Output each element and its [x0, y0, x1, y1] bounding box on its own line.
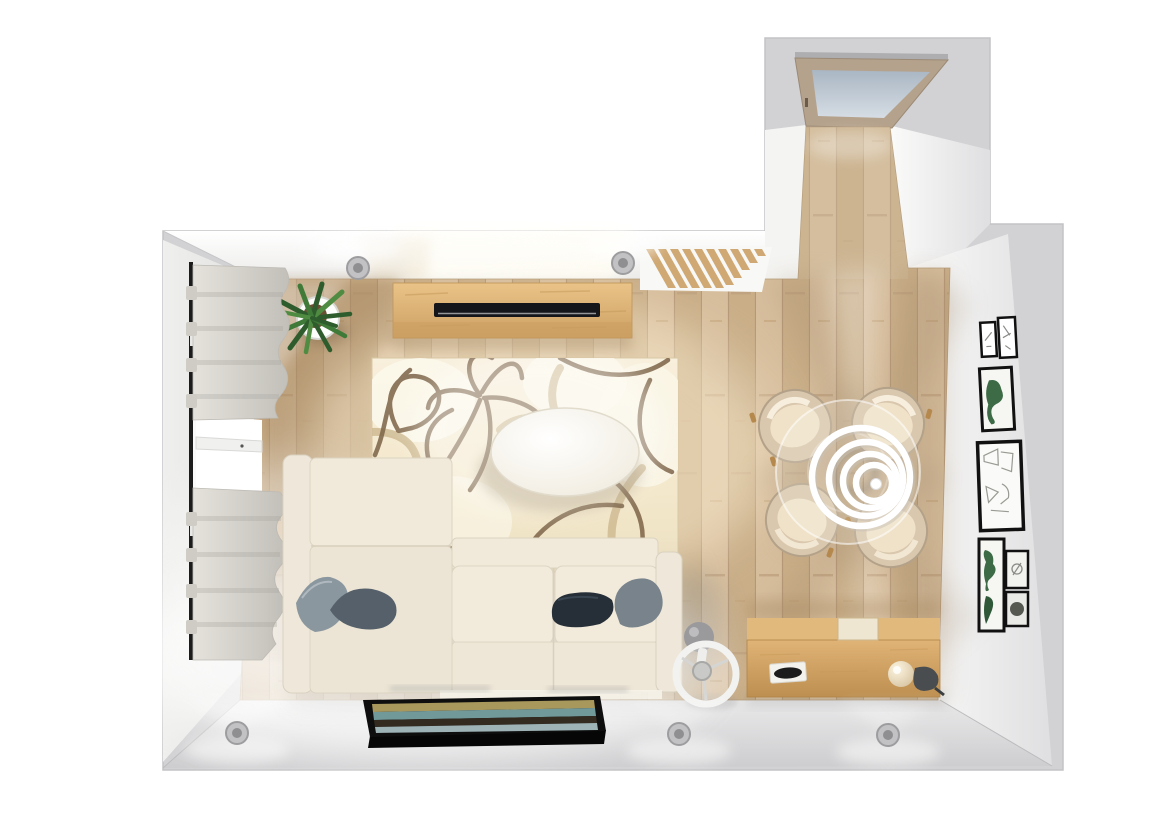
frame-small [998, 317, 1017, 358]
decor-tray [769, 662, 806, 683]
floorplan-render [0, 0, 1167, 832]
fan-motor-highlight [689, 627, 699, 637]
low-sideboard[interactable] [745, 600, 945, 706]
sofa-left-arm [283, 455, 313, 693]
frame-botanical-1[interactable] [979, 367, 1014, 431]
roman-shade-bottom[interactable] [193, 488, 286, 660]
window-track [189, 262, 193, 660]
decor-sphere-lamp [888, 661, 914, 687]
tv-screen[interactable] [434, 303, 600, 317]
fan-hub [693, 662, 711, 680]
sideboard-tray-recess [838, 618, 878, 640]
frame-tall [979, 539, 1004, 631]
coffee-table[interactable] [491, 408, 639, 496]
frame-botanical-2[interactable] [979, 539, 1004, 631]
window-glass[interactable] [196, 415, 262, 500]
sofa-cushion [452, 566, 553, 644]
sofa-backrest [452, 538, 658, 568]
frame-small [980, 322, 997, 357]
door-handle [805, 98, 808, 107]
sideboard-front-edge [393, 322, 632, 338]
door-light [808, 131, 892, 159]
frame-small-dark[interactable] [1006, 592, 1028, 626]
spiral-pendant-lamp[interactable] [812, 428, 912, 528]
tv-sideboard[interactable] [393, 283, 632, 350]
painting-floor-shadow [390, 686, 490, 691]
wall-radiator[interactable] [640, 247, 772, 292]
sideboard-back-shadow [747, 600, 940, 618]
lamp-center [871, 479, 882, 490]
sofa-chaise-back [310, 458, 452, 546]
sphere-highlight [893, 666, 901, 674]
frame-lineart[interactable] [977, 441, 1023, 530]
painting-floor-shadow [548, 687, 628, 692]
frame-small-flower[interactable] [1006, 551, 1028, 588]
window-handle [240, 444, 243, 447]
room-planner-canvas [0, 0, 1167, 832]
dark-round-art [1010, 602, 1024, 616]
sofa-front-edge [452, 642, 658, 692]
